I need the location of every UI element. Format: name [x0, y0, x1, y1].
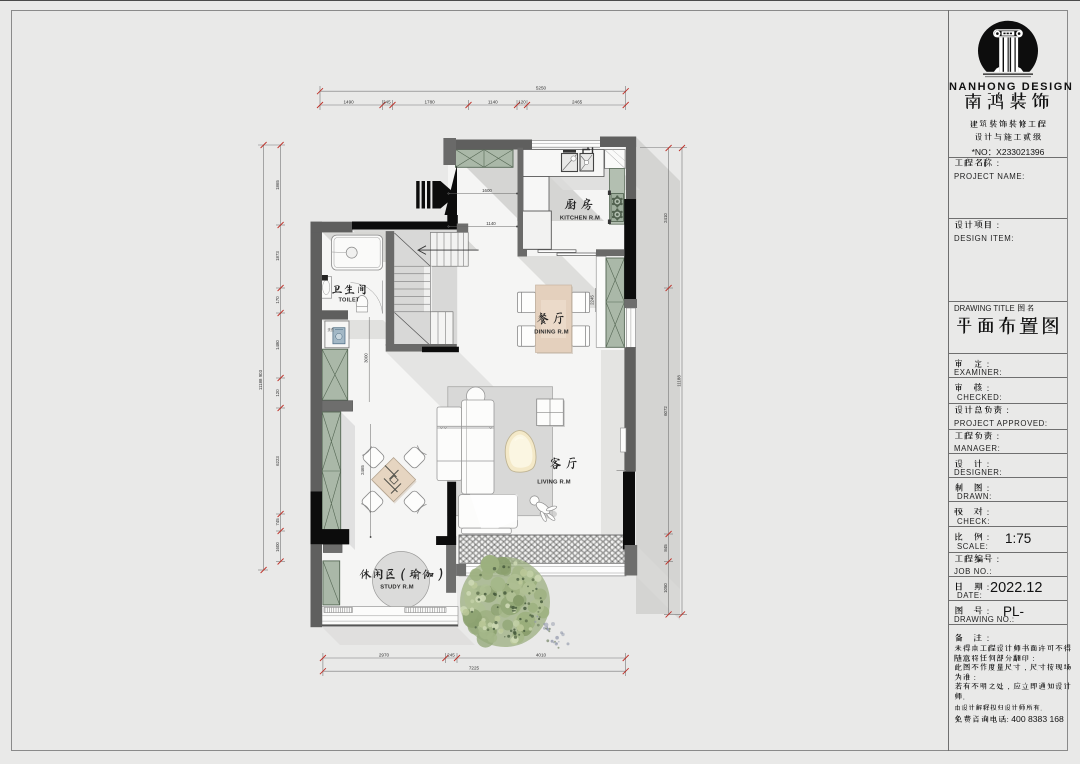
- svg-text:120: 120: [518, 100, 526, 105]
- svg-text:TOILET: TOILET: [339, 298, 360, 304]
- svg-text:1490: 1490: [343, 100, 354, 105]
- svg-text:LIVING R.M: LIVING R.M: [537, 480, 571, 486]
- svg-text:170: 170: [275, 296, 280, 304]
- svg-text:餐厅: 餐厅: [536, 312, 568, 325]
- svg-text:120: 120: [275, 389, 280, 397]
- svg-text:洗衣: 洗衣: [328, 327, 335, 332]
- svg-text:745: 745: [275, 518, 280, 526]
- svg-text:1480: 1480: [275, 340, 280, 350]
- svg-text:245: 245: [383, 100, 391, 105]
- svg-text:2970: 2970: [379, 653, 390, 658]
- svg-text:845: 845: [663, 544, 668, 552]
- svg-text:休闲区（瑜伽）: 休闲区（瑜伽）: [359, 568, 447, 582]
- svg-text:2245: 2245: [590, 295, 595, 305]
- svg-text:7225: 7225: [469, 666, 480, 671]
- svg-text:STUDY R.M: STUDY R.M: [380, 585, 414, 591]
- svg-text:客厅: 客厅: [549, 457, 581, 470]
- svg-text:1600: 1600: [275, 542, 280, 552]
- svg-text:1865: 1865: [275, 180, 280, 190]
- svg-text:3000: 3000: [364, 353, 369, 363]
- svg-text:1050: 1050: [663, 583, 668, 593]
- svg-text:1780: 1780: [424, 100, 435, 105]
- svg-text:KITCHEN R.M: KITCHEN R.M: [560, 216, 600, 222]
- svg-text:6072: 6072: [663, 406, 668, 416]
- svg-text:2465: 2465: [572, 100, 583, 105]
- svg-text:1140: 1140: [486, 221, 496, 226]
- svg-text:245: 245: [447, 653, 455, 658]
- svg-text:11188 903: 11188 903: [258, 369, 263, 390]
- svg-text:DINING R.M: DINING R.M: [534, 330, 569, 336]
- svg-text:11188: 11188: [677, 375, 682, 387]
- svg-text:1873: 1873: [275, 251, 280, 261]
- svg-text:5250: 5250: [536, 86, 547, 91]
- svg-text:1600: 1600: [482, 188, 492, 193]
- svg-text:2410: 2410: [663, 213, 668, 223]
- svg-text:6223: 6223: [275, 456, 280, 466]
- svg-text:1140: 1140: [488, 100, 498, 105]
- svg-text:卫生间: 卫生间: [331, 284, 369, 296]
- svg-text:4010: 4010: [536, 653, 547, 658]
- svg-text:2465: 2465: [360, 465, 365, 475]
- svg-text:厨房: 厨房: [564, 198, 596, 211]
